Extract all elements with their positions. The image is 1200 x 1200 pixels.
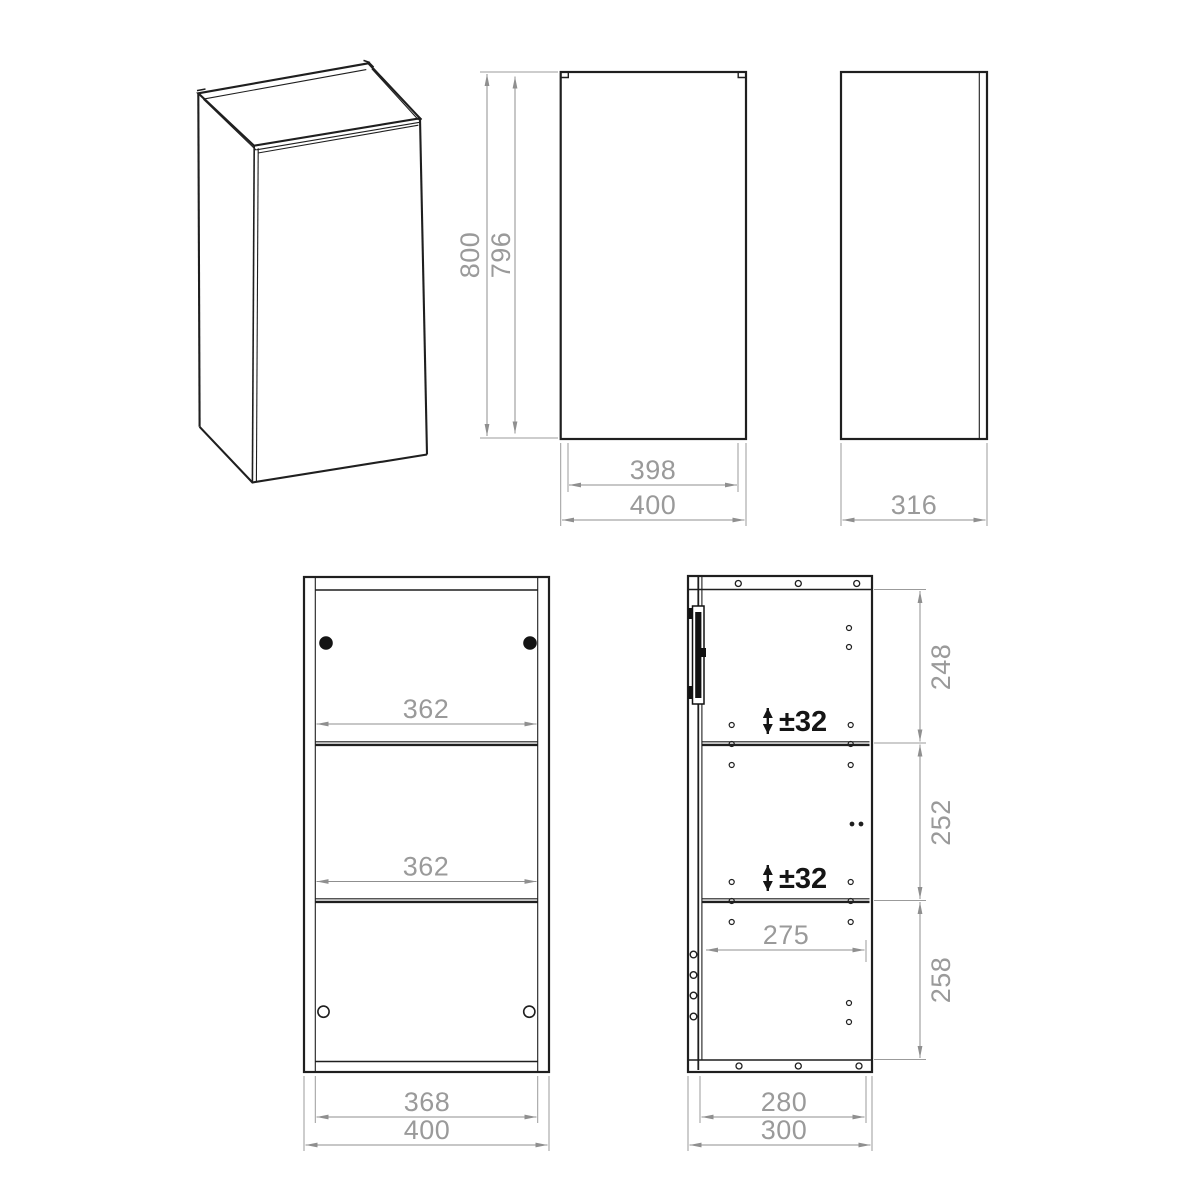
door-outline [561, 72, 746, 439]
pin-hole [729, 763, 734, 768]
upper-shelf [315, 742, 537, 745]
wall-mounting-hole [319, 636, 333, 650]
dowel-hole [735, 581, 741, 587]
interior-width-dimensions: 362 362 368 400 [304, 694, 549, 1151]
front-view: 800 796 398 400 [455, 72, 746, 526]
pin-hole [847, 645, 852, 650]
dim-label-upper-bay: 248 [926, 644, 956, 691]
dim-label-overall-height: 800 [455, 232, 485, 279]
hinge-tab [688, 686, 693, 699]
front-height-dimensions: 800 796 [455, 72, 558, 438]
section-side-view: ±32 ±32 275 248 252 258 [688, 576, 956, 1151]
hinge-plate-hole [690, 992, 697, 999]
shelf-depth-dimension: 275 [706, 920, 866, 962]
door-gap-line [256, 148, 258, 482]
pin-hole [729, 920, 734, 925]
technical-drawing: 800 796 398 400 316 [0, 0, 1200, 1200]
shelf-adjust-annotation-lower: ±32 [768, 863, 827, 895]
pin-hole [859, 822, 863, 826]
hinge-plate-holes [690, 951, 697, 1020]
dim-label-overall-width: 400 [630, 490, 677, 520]
perspective-view [197, 60, 427, 482]
dowel-hole [854, 581, 860, 587]
wall-mounting-hole [523, 636, 537, 650]
left-back-edge [198, 93, 199, 427]
interior-front-view: 362 362 368 400 [304, 577, 549, 1151]
lower-shelf [315, 899, 537, 902]
hinge-tab [701, 648, 706, 657]
pin-hole [729, 723, 734, 728]
top-face-outline [198, 63, 420, 145]
dim-label-lower-shelf-width: 362 [403, 852, 450, 882]
side-outline [841, 72, 987, 439]
dim-label-overall-depth: 300 [761, 1115, 808, 1145]
section-outline [688, 576, 872, 1072]
side-depth-dimension: 316 [841, 443, 987, 526]
dim-label-inner-depth: 280 [761, 1087, 808, 1117]
bay-height-dimensions: 248 252 258 [874, 590, 956, 1060]
section-depth-dimensions: 280 300 [688, 1076, 872, 1151]
corner-joint-mark [197, 60, 422, 119]
pin-hole [848, 723, 853, 728]
hinge-plate-hole [690, 951, 697, 958]
pin-hole [848, 920, 853, 925]
pin-hole [847, 626, 852, 631]
pin-hole [848, 880, 853, 885]
dim-label-shelf-depth: 275 [763, 920, 810, 950]
pin-hole [848, 763, 853, 768]
dim-label-lower-bay: 258 [926, 957, 956, 1004]
dowel-hole [856, 1063, 862, 1069]
dowel-hole [736, 1063, 742, 1069]
hinge-tab [688, 608, 693, 619]
front-width-dimensions: 398 400 [561, 443, 746, 526]
dowel-holes [735, 581, 862, 1070]
fixing-hole [318, 1006, 329, 1017]
shelf-pin-holes [729, 626, 863, 1025]
lower-shelf-section [702, 899, 870, 902]
top-panel-edge-lines [203, 69, 419, 153]
carcass-outline [304, 577, 549, 1072]
dim-label-door-height: 796 [486, 232, 516, 279]
pin-hole [850, 822, 854, 826]
hinge-bracket [688, 606, 706, 704]
fixing-hole [524, 1006, 535, 1017]
adjust-label-upper: ±32 [779, 706, 827, 738]
hinge-plate-hole [690, 972, 697, 979]
adjust-label-lower: ±32 [779, 863, 827, 895]
dim-label-door-width: 398 [630, 455, 677, 485]
dim-label-overall-width: 400 [404, 1115, 451, 1145]
dowel-hole [795, 1063, 801, 1069]
shelf-adjust-annotation-upper: ±32 [768, 706, 827, 738]
upper-shelf-section [702, 742, 870, 745]
bottom-edges [200, 427, 427, 483]
dowel-hole [795, 581, 801, 587]
pin-hole [729, 880, 734, 885]
side-view: 316 [841, 72, 987, 526]
right-front-edge [420, 118, 427, 454]
hinge-plate-hole [690, 1013, 697, 1020]
dim-label-overall-depth: 316 [891, 490, 938, 520]
hinge-bar [695, 612, 701, 698]
door-front-edge [252, 146, 254, 482]
dim-label-inner-width: 368 [404, 1087, 451, 1117]
pin-hole [847, 1001, 852, 1006]
dim-label-upper-shelf-width: 362 [403, 694, 450, 724]
pin-hole [847, 1020, 852, 1025]
dim-label-middle-bay: 252 [926, 799, 956, 846]
